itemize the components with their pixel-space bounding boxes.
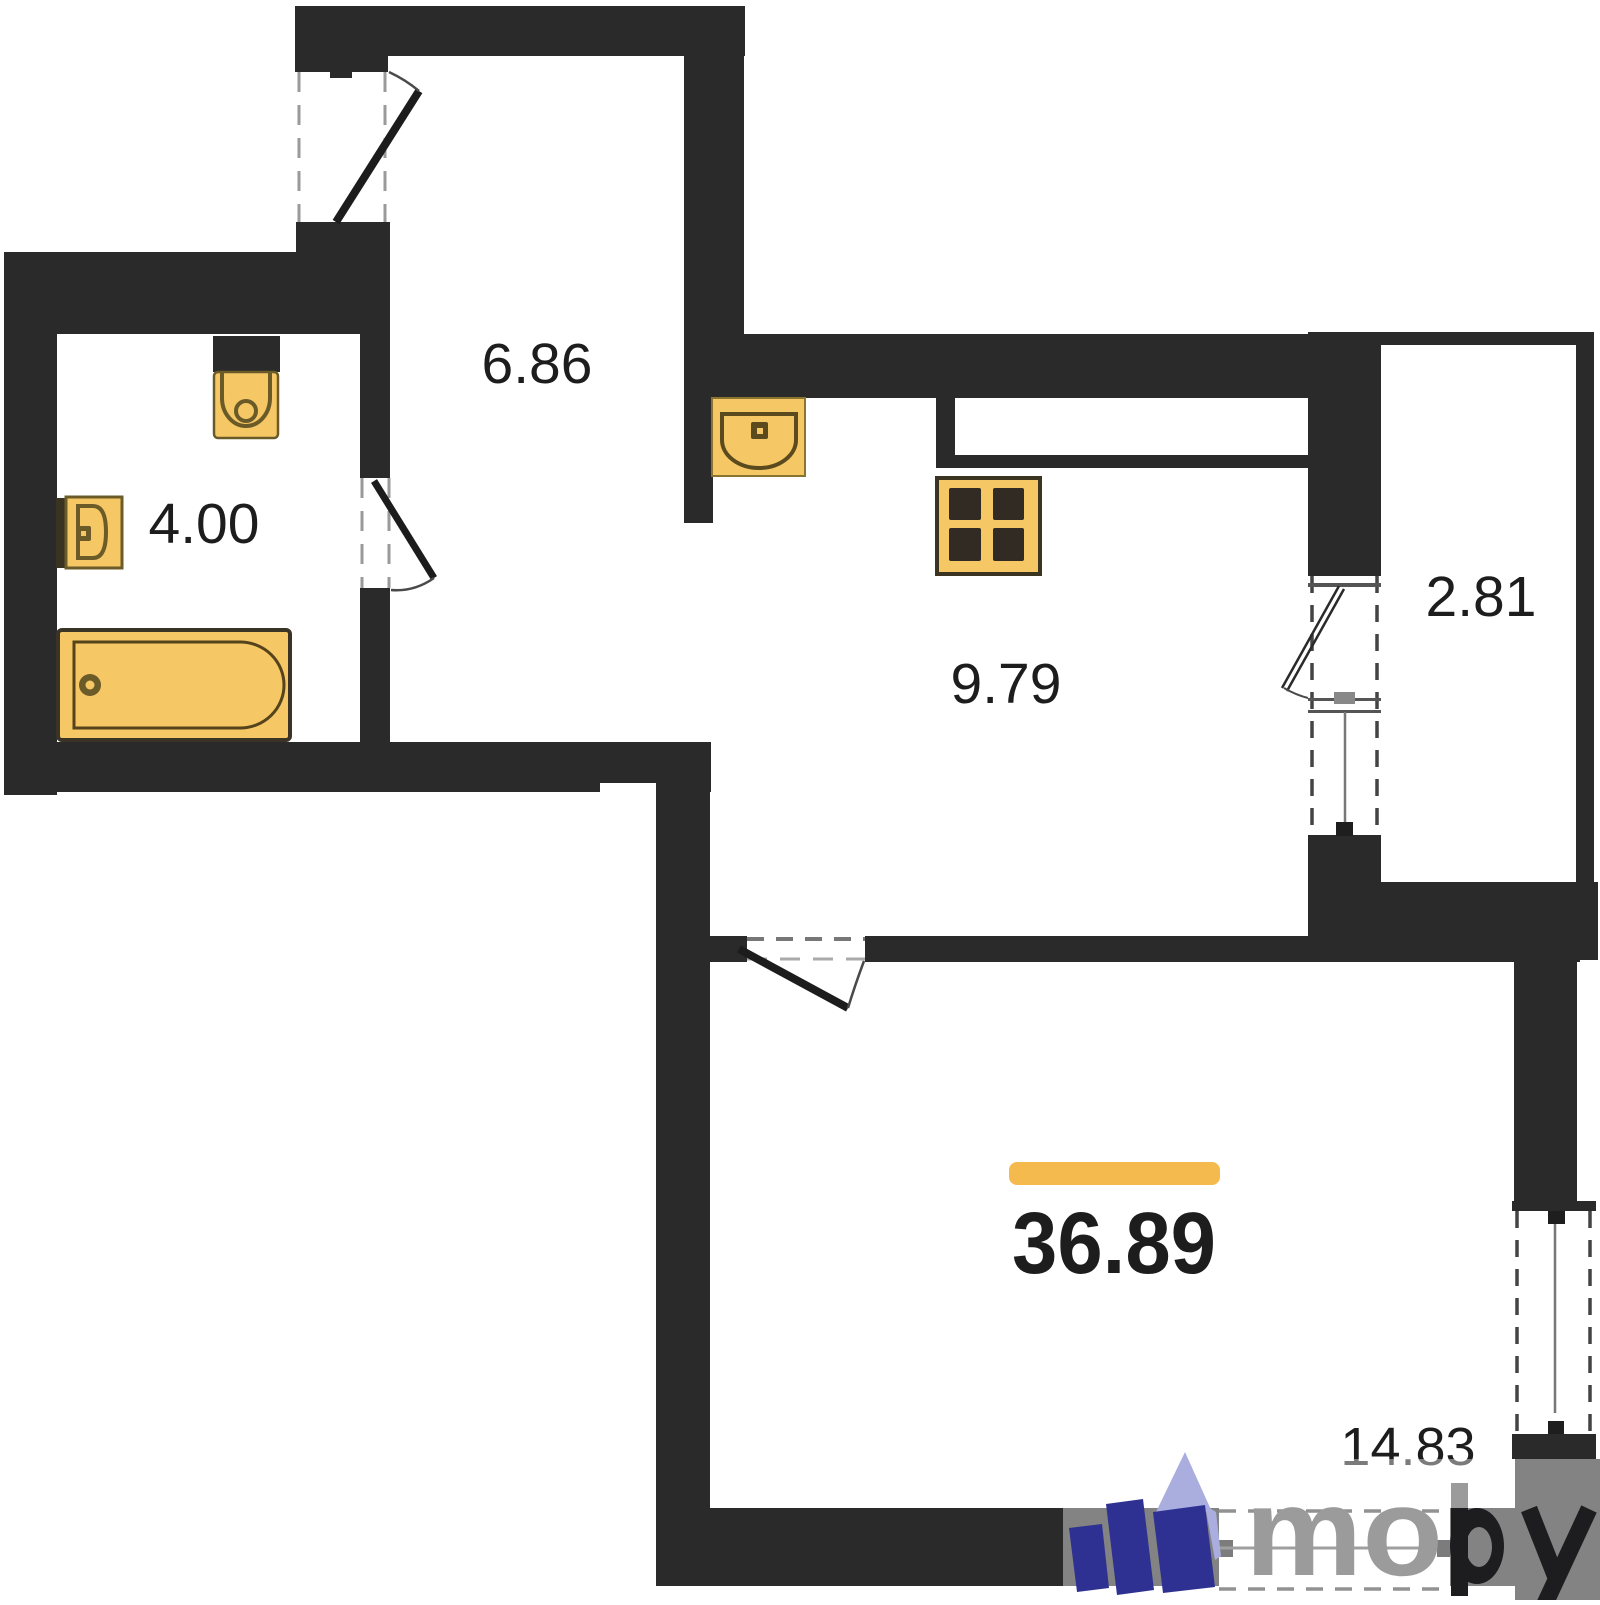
svg-text:6.86: 6.86 [482,332,593,396]
svg-text:36.89: 36.89 [1012,1195,1216,1292]
svg-text:9.79: 9.79 [951,652,1062,716]
svg-text:2.81: 2.81 [1426,565,1537,629]
svg-text:4.00: 4.00 [149,492,260,556]
svg-text:mo: mo [1245,1461,1443,1600]
